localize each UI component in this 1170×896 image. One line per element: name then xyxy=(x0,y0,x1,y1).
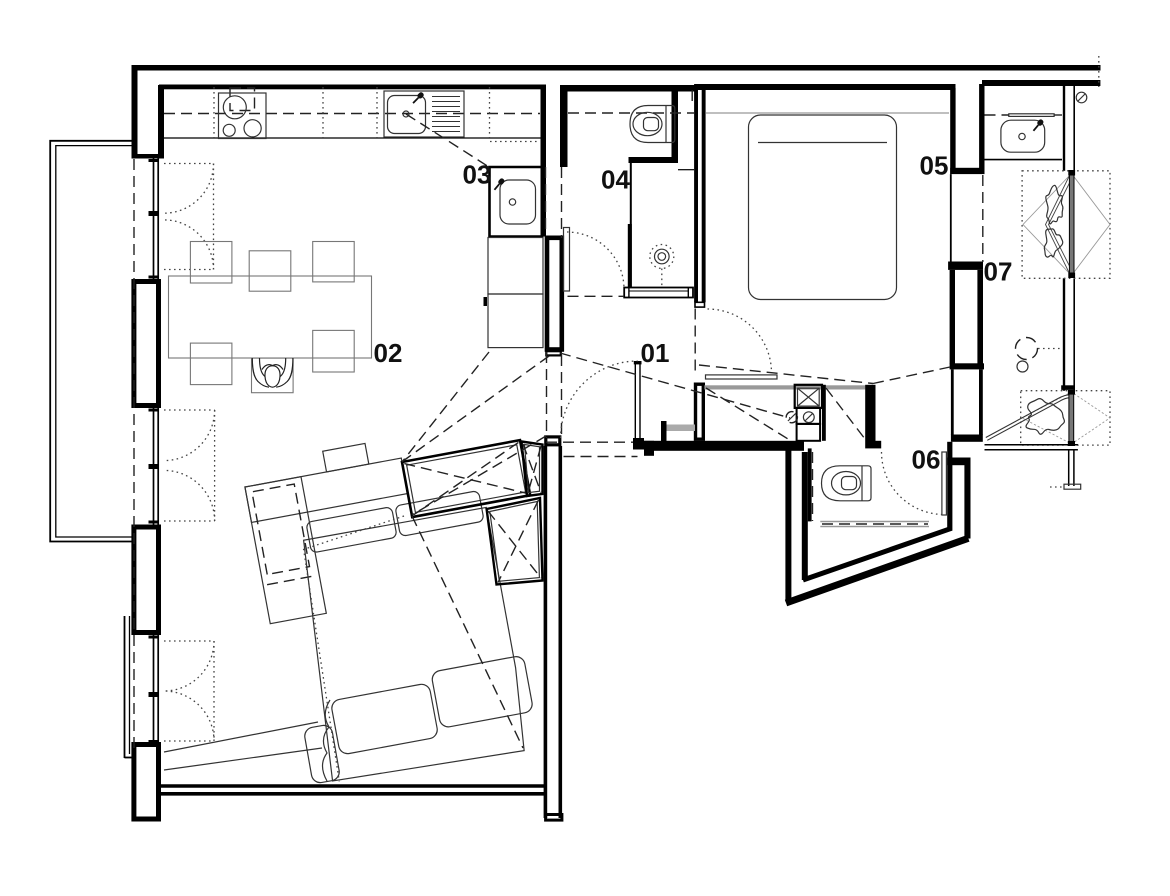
svg-text:03: 03 xyxy=(463,160,492,190)
svg-text:07: 07 xyxy=(984,257,1013,287)
svg-text:06: 06 xyxy=(912,445,941,475)
svg-text:04: 04 xyxy=(601,165,630,195)
svg-text:02: 02 xyxy=(374,338,403,368)
svg-text:05: 05 xyxy=(920,151,949,181)
svg-text:01: 01 xyxy=(641,338,670,368)
